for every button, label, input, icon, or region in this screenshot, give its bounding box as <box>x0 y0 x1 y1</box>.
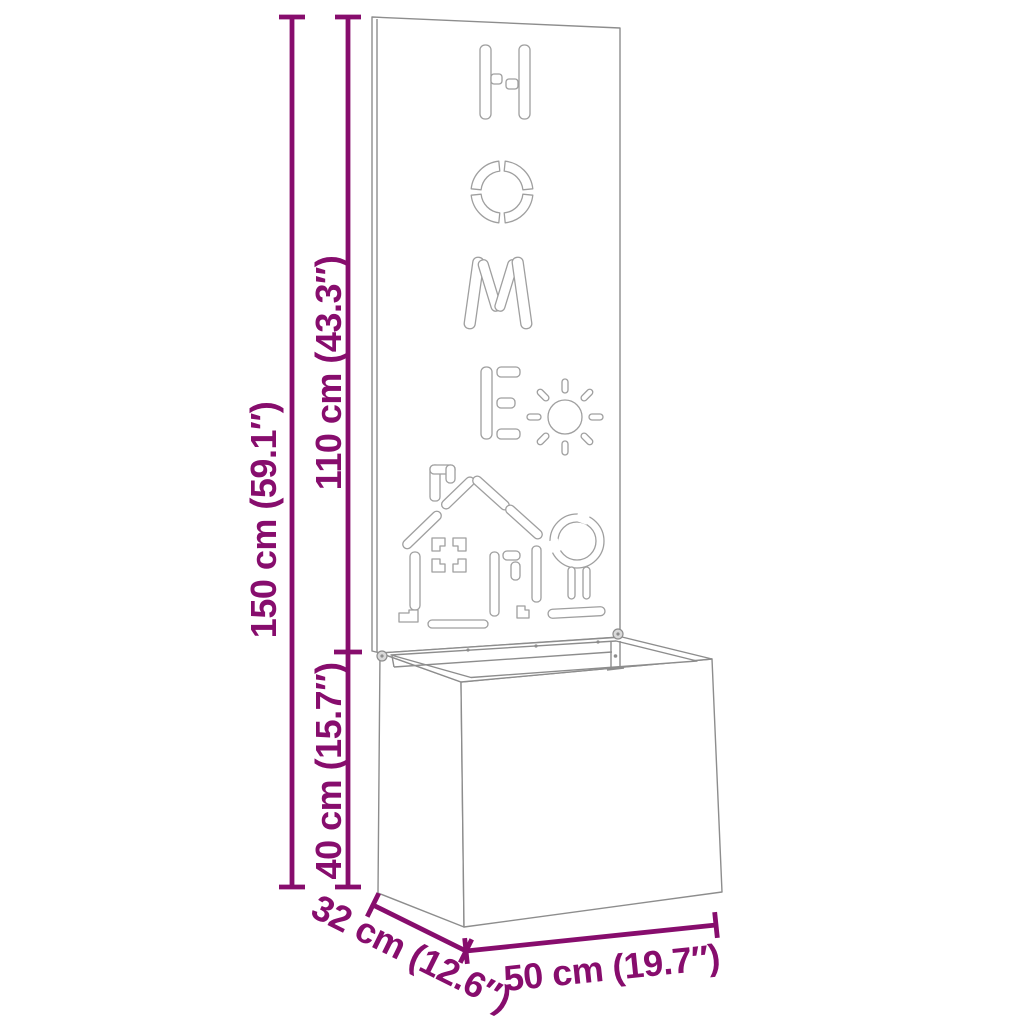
dimension-diagram: 150 cm (59.1″) 110 cm (43.3″) 40 cm (15.… <box>0 0 1024 1024</box>
planter-box <box>377 629 722 927</box>
page: 150 cm (59.1″) 110 cm (43.3″) 40 cm (15.… <box>0 0 1024 1024</box>
dimension-total-height: 150 cm (59.1″) <box>243 17 305 887</box>
panel-height-label: 110 cm (43.3″) <box>308 256 349 490</box>
screw-right <box>613 629 623 639</box>
dimension-panel-and-box-height: 110 cm (43.3″) 40 cm (15.7″) <box>308 17 362 887</box>
sun-cutout-icon <box>527 379 603 455</box>
screw-left <box>377 651 387 661</box>
box-height-label: 40 cm (15.7″) <box>308 663 349 880</box>
total-height-label: 150 cm (59.1″) <box>243 402 284 638</box>
